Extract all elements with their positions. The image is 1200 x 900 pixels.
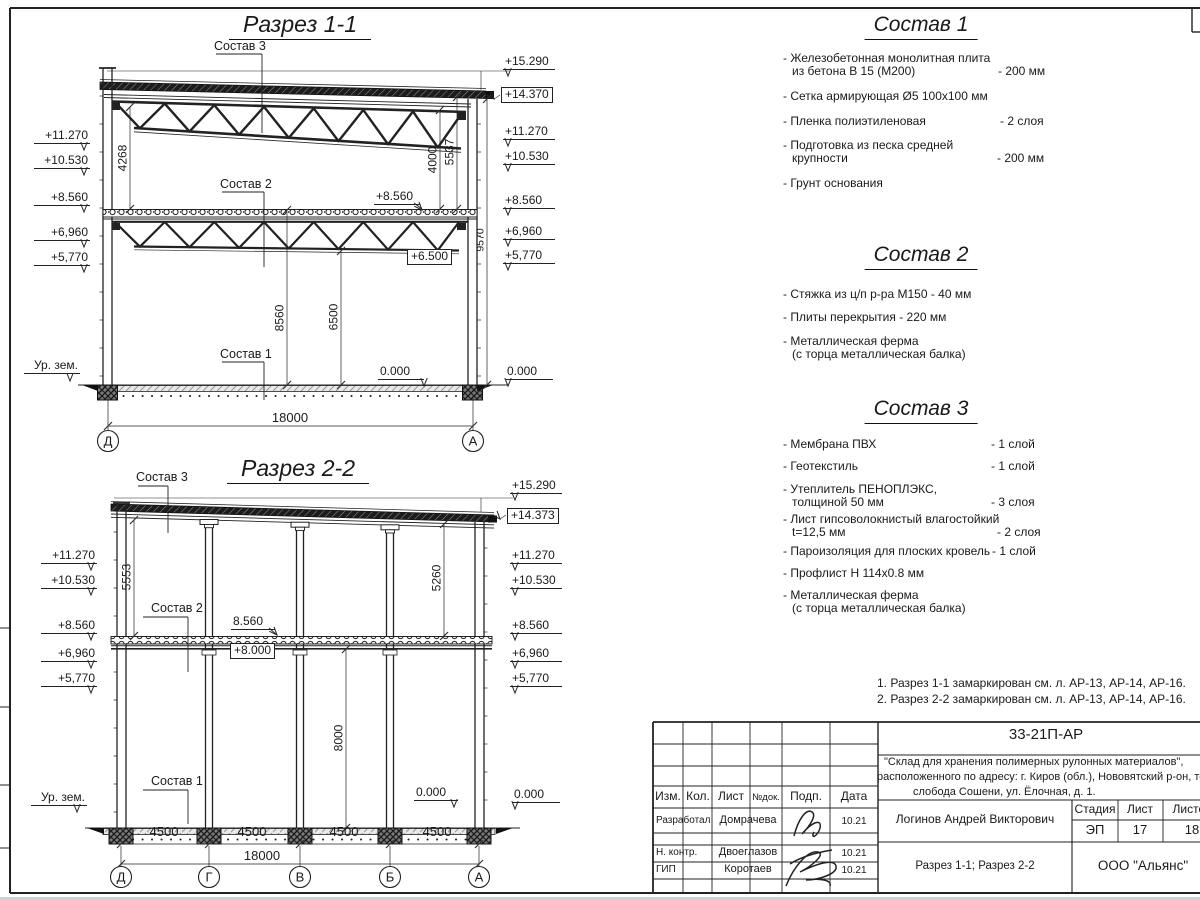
project-description: "Склад для хранения полимерных рулонных …	[884, 757, 1183, 769]
stamp-role: Разработал	[656, 816, 710, 827]
dim-label: 5537	[444, 139, 457, 166]
dim-label: 6500	[328, 304, 341, 331]
elevation-mark: 8.560	[231, 615, 275, 630]
dim-label: 4500	[423, 825, 452, 839]
elevation-mark: +8.560	[503, 194, 555, 209]
leader-label-sostav3: Состав 3	[136, 471, 188, 485]
material-qty: - 1 слой	[991, 460, 1035, 473]
author-name: Логинов Андрей Викторович	[896, 813, 1054, 826]
material-item: - Металлическая ферма (с торца металличе…	[783, 335, 1037, 361]
dim-label: 4500	[238, 825, 267, 839]
elevation-mark: +5,770	[510, 672, 562, 687]
elevation-mark: +8.560	[41, 619, 97, 634]
sheet-content-title: Разрез 1-1; Разрез 2-2	[915, 860, 1034, 872]
dim-label: 8560	[274, 305, 287, 332]
elevation-mark: +11.270	[503, 125, 555, 140]
grid-bubble: А	[467, 870, 491, 885]
material-item: - Профлист Н 114х0.8 мм	[783, 567, 1037, 580]
material-qty: - 200 мм	[998, 65, 1045, 78]
elevation-mark: 0.000	[505, 365, 553, 380]
signature	[786, 852, 836, 886]
elevation-mark: +15.290	[510, 479, 562, 494]
stamp-name: Домрачева	[720, 815, 777, 827]
dim-label: 8000	[333, 725, 346, 752]
dim-label: 9570	[475, 228, 486, 251]
material-item: - Металлическая ферма (с торца металличе…	[783, 589, 1037, 615]
elevation-mark: +11.270	[34, 129, 90, 144]
leader-label-sostav2: Состав 2	[151, 602, 203, 616]
grid-bubble: Г	[197, 870, 221, 885]
dim-label: 4500	[330, 825, 359, 839]
stage-header: Стадия	[1075, 803, 1116, 816]
grid-bubble: В	[288, 870, 312, 885]
elevation-mark: +8.560	[510, 619, 562, 634]
section2-title: Разрез 2-2	[227, 456, 369, 484]
stamp-col-header: Кол.	[686, 790, 710, 803]
grid-bubble: Б	[378, 870, 402, 885]
project-description: слобода Сошени, ул. Ёлочная, д. 1.	[913, 787, 1096, 799]
elevation-mark: +8.560	[34, 191, 90, 206]
sheet-value: 17	[1133, 823, 1147, 837]
stamp-date: 10.21	[841, 817, 866, 828]
material-qty: - 200 мм	[997, 152, 1044, 165]
dim-label: 5553	[121, 564, 134, 591]
leader-label-sostav1: Состав 1	[220, 348, 272, 362]
section2-drawing	[74, 486, 520, 888]
material-qty: - 1 слой	[991, 438, 1035, 451]
dim-label: 18000	[244, 849, 280, 863]
leader-label-sostav1: Состав 1	[151, 775, 203, 789]
leader-label-sostav3: Состав 3	[214, 40, 266, 54]
drawing-sheet: Разрез 1-1 Состав 3 Состав 2 Состав 1 +1…	[0, 0, 1200, 900]
stamp-name: Коротаев	[724, 864, 772, 876]
elevation-mark: +8.560	[374, 190, 420, 205]
sostav1-block: Состав 1 - Железобетонная монолитная пли…	[780, 14, 1200, 240]
note-line: 2. Разрез 2-2 замаркирован см. л. АР-13,…	[877, 693, 1186, 706]
elevation-mark: +10.530	[503, 150, 555, 165]
elevation-mark: 0.000	[378, 365, 424, 380]
stamp-role: Н. контр.	[656, 848, 697, 859]
stamp-name: Двоеглазов	[719, 847, 777, 859]
grid-bubble: Д	[109, 870, 133, 885]
material-item: - Стяжка из ц/п р-ра М150 - 40 мм	[783, 288, 1037, 301]
stamp-date: 10.21	[841, 849, 866, 860]
stamp-role: ГИП	[656, 865, 676, 876]
sheet-header: Лист	[1127, 803, 1153, 816]
elevation-mark: +5,770	[34, 251, 90, 266]
sostav2-title: Состав 2	[865, 244, 978, 270]
elevation-mark-boxed: +8.000	[230, 643, 275, 659]
grid-bubble: Д	[96, 434, 120, 449]
elevation-mark-boxed: +14.373	[507, 508, 559, 524]
material-qty: - 2 слоя	[1000, 115, 1044, 128]
ground-level-label: Ур. зем.	[24, 359, 80, 374]
elevation-mark-boxed: +6.500	[407, 249, 452, 265]
dim-label: 4268	[117, 145, 130, 172]
dim-label: 4000	[427, 147, 440, 174]
elevation-mark: +15.290	[503, 55, 555, 70]
stamp-col-header: №док.	[752, 793, 780, 803]
leader-label-sostav2: Состав 2	[220, 178, 272, 192]
section1-title: Разрез 1-1	[229, 12, 371, 40]
ground-level-label: Ур. зем.	[31, 791, 87, 806]
sostav3-title: Состав 3	[865, 398, 978, 424]
elevation-mark: +10.530	[41, 574, 97, 589]
dim-label: 5260	[431, 565, 444, 592]
sheets-value: 18	[1185, 823, 1199, 837]
dim-label: 4500	[150, 825, 179, 839]
elevation-mark-boxed: +14.370	[501, 87, 553, 103]
elevation-mark: +11.270	[41, 549, 97, 564]
material-item: - Плиты перекрытия - 220 мм	[783, 311, 1037, 324]
doc-number: 33-21П-АР	[1009, 727, 1083, 743]
elevation-mark: +10.530	[510, 574, 562, 589]
material-qty: - 3 слоя	[991, 496, 1035, 509]
material-qty: - 1 слой	[992, 545, 1036, 558]
sostav1-title: Состав 1	[865, 14, 978, 40]
elevation-mark: +5,770	[503, 249, 555, 264]
elevation-mark: +11.270	[510, 549, 562, 564]
elevation-mark: +6,960	[34, 226, 90, 241]
note-line: 1. Разрез 1-1 замаркирован см. л. АР-13,…	[877, 677, 1186, 690]
stamp-col-header: Лист	[718, 790, 744, 803]
material-item: - Сетка армирующая Ø5 100х100 мм	[783, 90, 1037, 103]
elevation-mark: +5,770	[41, 672, 97, 687]
elevation-mark: 0.000	[512, 788, 560, 803]
elevation-mark: 0.000	[414, 786, 458, 801]
stamp-col-header: Дата	[841, 790, 868, 803]
stage-value: ЭП	[1086, 823, 1105, 837]
elevation-mark: +6,960	[503, 225, 555, 240]
stamp-col-header: Изм.	[655, 790, 681, 803]
elevation-mark: +6,960	[41, 647, 97, 662]
material-item: - Пленка полиэтиленовая	[783, 115, 1037, 128]
sheets-header: Листов	[1173, 803, 1200, 816]
grid-bubble: А	[461, 434, 485, 449]
material-item: - Грунт основания	[783, 177, 1037, 190]
project-description: расположенного по адресу: г. Киров (обл.…	[877, 772, 1200, 784]
stamp-col-header: Подп.	[790, 790, 822, 803]
material-qty: - 2 слоя	[997, 526, 1041, 539]
sostav2-block: Состав 2 - Стяжка из ц/п р-ра М150 - 40 …	[780, 244, 1200, 374]
elevation-mark: +6,960	[510, 647, 562, 662]
company-name: ООО "Альянс"	[1098, 859, 1188, 874]
stamp-date: 10.21	[841, 866, 866, 877]
sostav3-block: Состав 3 - Мембрана ПВХ - 1 слой - Геоте…	[780, 398, 1200, 628]
dim-label: 18000	[272, 411, 308, 425]
elevation-mark: +10.530	[34, 154, 90, 169]
